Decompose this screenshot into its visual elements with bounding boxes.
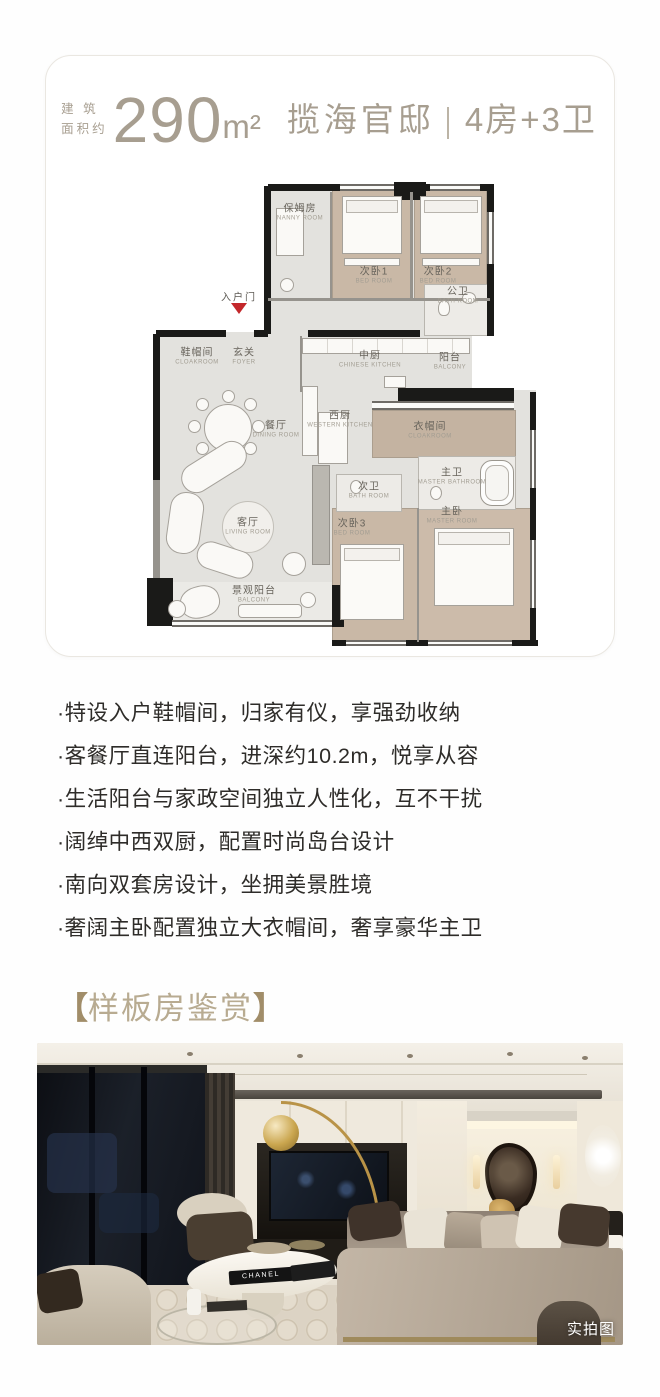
page: 建 筑 面积约 290 m² 揽海官邸 4房+3卫 <box>0 0 660 1397</box>
room-label-foyer: 玄关FOYER <box>232 347 255 366</box>
plant-icon <box>168 600 186 618</box>
feather-lamp <box>585 1125 621 1187</box>
window-right-topwing <box>487 212 494 264</box>
window-reflection <box>99 1193 159 1233</box>
window-top-2 <box>430 184 480 191</box>
room-label-dining: 餐厅DINING ROOM <box>253 420 300 439</box>
feature-item: ·阔绰中西双厨，配置时尚岛台设计 <box>57 830 617 855</box>
window-right-2 <box>530 540 536 608</box>
showroom-photo: CHANEL 实拍图 <box>37 1043 623 1345</box>
bracket-open: 【 <box>57 983 88 1028</box>
window-right-1 <box>530 430 536 488</box>
recessed-light-icon <box>507 1052 513 1056</box>
room-label-nanny: 保姆房NANNY ROOM <box>277 203 323 222</box>
wall-left-window <box>153 480 160 580</box>
arc-lamp-shade <box>263 1115 299 1151</box>
partition-nanny-bed1 <box>330 192 332 298</box>
partition-bed3-master <box>417 508 419 642</box>
bracket-close: 】 <box>253 983 284 1028</box>
room-label-bath-public: 公卫BATH ROOM <box>438 286 478 305</box>
window-top-1 <box>340 184 396 191</box>
decor-bowl <box>289 1240 325 1250</box>
feature-item: ·南向双套房设计，坐拥美景胜境 <box>57 873 617 898</box>
room-label-cloak-entry: 鞋帽间CLOAKROOM <box>175 347 219 366</box>
balcony-table-icon <box>238 604 302 618</box>
room-label-cloak-master: 衣帽间CLOAKROOM <box>408 421 452 440</box>
entrance-arrow-icon <box>231 303 247 314</box>
bottle <box>187 1289 201 1315</box>
room-label-chinese-kitchen: 中厨CHINESE KITCHEN <box>339 350 401 369</box>
balcony-railing <box>172 620 334 627</box>
bed-bench-icon <box>422 258 480 266</box>
room-label-balcony-service: 阳台BALCONY <box>434 352 466 371</box>
room-label-bed2: 次卧2BED ROOM <box>420 266 457 285</box>
room-label-living: 客厅LIVING ROOM <box>225 517 271 536</box>
recessed-light-icon <box>297 1054 303 1058</box>
window-frame <box>37 1065 207 1073</box>
room-label-bath-master: 主卫MASTER BATHROOM <box>418 467 486 486</box>
bed-bench-icon <box>344 258 400 266</box>
wall-rightwing-top <box>398 388 514 401</box>
sconce-icon <box>553 1155 560 1189</box>
wall-left-main <box>153 334 160 480</box>
bed-icon <box>342 196 402 254</box>
stacked-books <box>207 1300 247 1312</box>
room-label-balcony-view: 景观阳台BALCONY <box>232 585 276 604</box>
window-cloak <box>372 401 514 410</box>
window-bottom-1 <box>346 640 406 646</box>
room-label-bath2: 次卫BATH ROOM <box>349 481 389 500</box>
wall-block-bottom-left <box>147 578 173 626</box>
feature-list: ·特设入户鞋帽间，归家有仪，享强劲收纳 ·客餐厅直连阳台，进深约10.2m，悦享… <box>57 701 617 959</box>
feature-item: ·奢阔主卧配置独立大衣帽间，奢享豪华主卫 <box>57 916 617 941</box>
plant-icon <box>300 592 316 608</box>
bed-icon <box>434 528 514 606</box>
dining-chair-icon <box>196 398 209 411</box>
feature-item: ·客餐厅直连阳台，进深约10.2m，悦享从容 <box>57 744 617 769</box>
entrance-label: 入户门 <box>221 289 257 304</box>
decor-bowl <box>247 1242 291 1254</box>
wall-entry-left <box>156 330 226 337</box>
wall-entry-right <box>254 330 268 337</box>
cove-light <box>467 1121 577 1129</box>
sofa-bolster <box>557 1202 611 1247</box>
feature-item: ·生活阳台与家政空间独立人性化，互不干扰 <box>57 787 617 812</box>
bed-icon <box>340 544 404 620</box>
sofa-bolster <box>347 1200 404 1243</box>
wall-left-topwing <box>264 186 271 334</box>
floorplan: 入户门 保姆房NANNY ROOM 次卧1BED ROOM 次卧2BED ROO… <box>0 0 660 700</box>
room-label-bed3: 次卧3BED ROOM <box>334 518 371 537</box>
ac-vent <box>182 1090 602 1099</box>
toilet-icon <box>430 486 442 500</box>
dining-chair-icon <box>188 420 201 433</box>
partition-bed1-bed2 <box>410 192 413 298</box>
room-label-master: 主卧MASTER ROOM <box>427 506 478 525</box>
cooktop <box>384 376 406 388</box>
section-title: 【 样板房鉴赏 】 <box>57 983 284 1028</box>
wall-kitchen-top <box>308 330 420 337</box>
armchair-pillow <box>37 1267 84 1314</box>
pouf-icon <box>282 552 306 576</box>
room-label-western-kitchen: 西厨WESTERN KITCHEN <box>307 410 373 429</box>
photo-tag: 实拍图 <box>567 1318 615 1339</box>
section-title-text: 样板房鉴赏 <box>88 983 253 1028</box>
tv-cabinet-wall <box>312 465 330 565</box>
nanny-sink-icon <box>280 278 294 292</box>
dining-chair-icon <box>222 390 235 403</box>
room-label-bed1: 次卧1BED ROOM <box>356 266 393 285</box>
window-mullion <box>141 1067 147 1305</box>
recessed-light-icon <box>187 1052 193 1056</box>
window-reflection <box>47 1133 117 1193</box>
dining-chair-icon <box>244 398 257 411</box>
recessed-light-icon <box>407 1054 413 1058</box>
sconce-icon <box>473 1155 480 1189</box>
window-bottom-2 <box>428 640 512 646</box>
recessed-light-icon <box>582 1056 588 1060</box>
bed-icon <box>420 196 482 254</box>
feature-item: ·特设入户鞋帽间，归家有仪，享强劲收纳 <box>57 701 617 726</box>
